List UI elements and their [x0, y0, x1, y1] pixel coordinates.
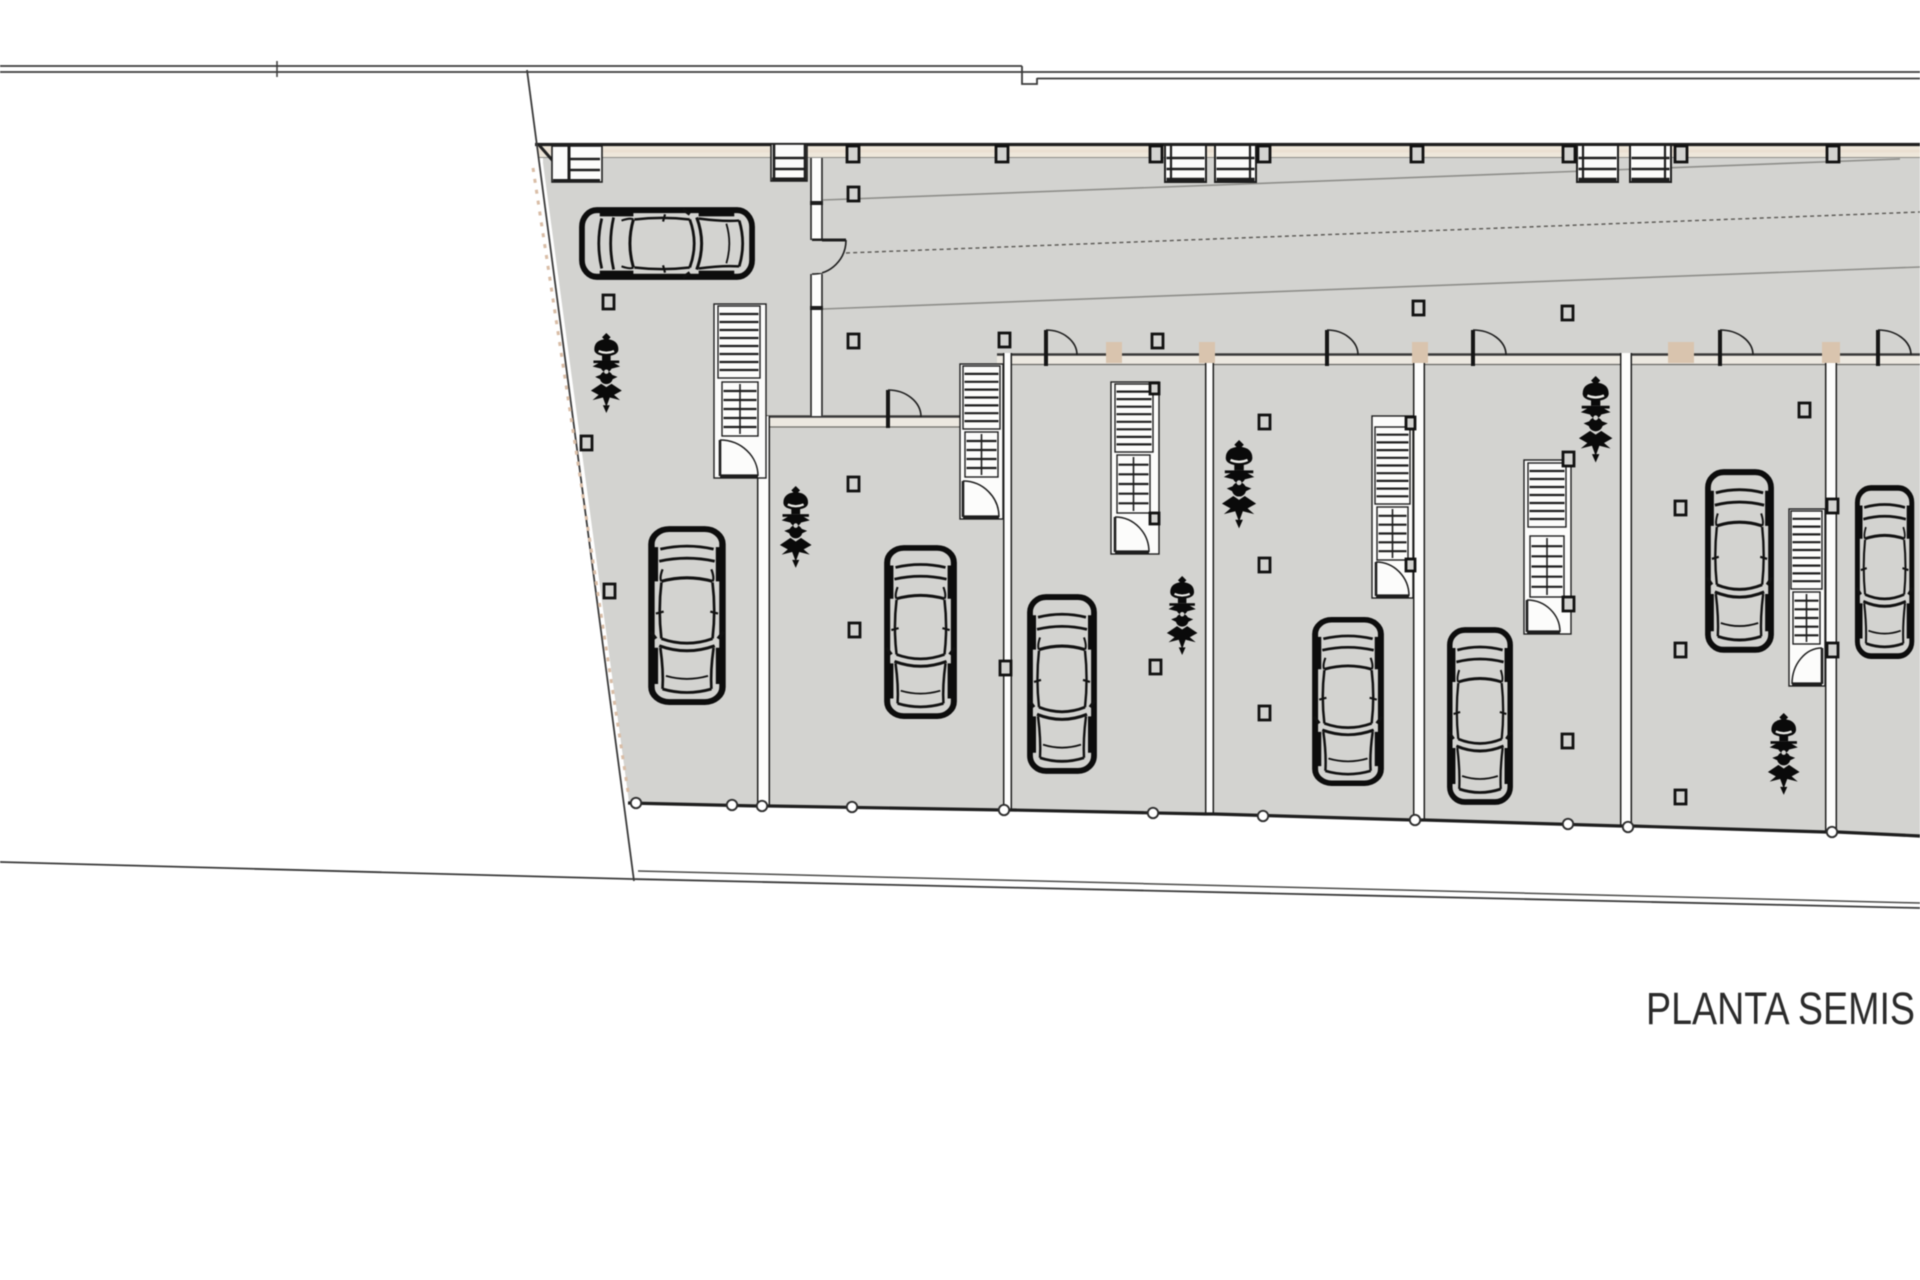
svg-text:PLANTA SEMIS: PLANTA SEMIS	[1646, 983, 1915, 1034]
